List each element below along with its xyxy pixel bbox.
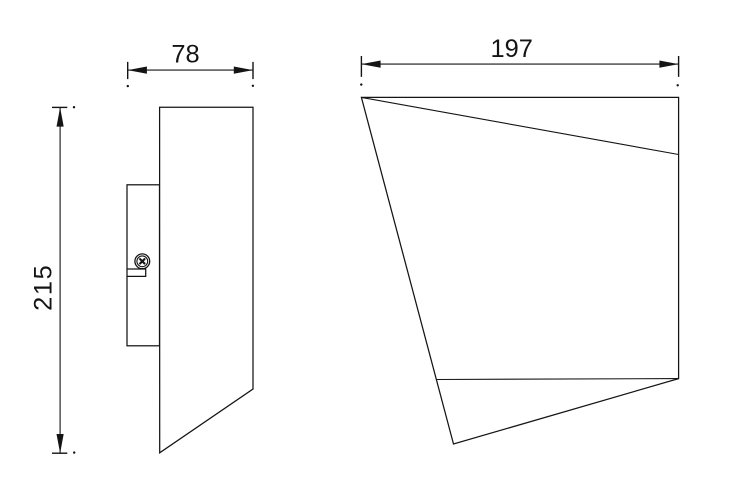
svg-text:197: 197 [491,35,533,63]
svg-text:215: 215 [29,264,57,311]
svg-text:78: 78 [171,40,199,68]
